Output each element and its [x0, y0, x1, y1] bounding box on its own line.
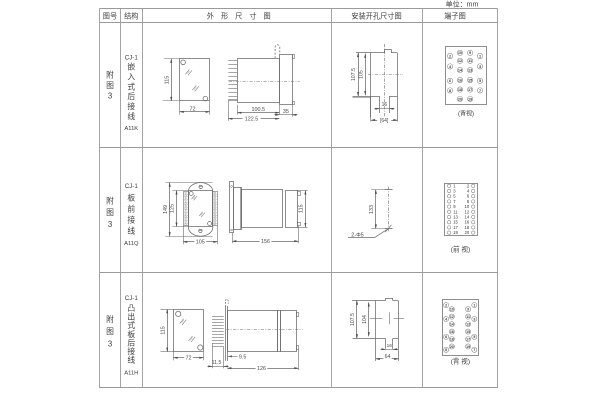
svg-text:3: 3 — [473, 317, 475, 321]
svg-text:外 形 尺 寸 图: 外 形 尺 寸 图 — [207, 11, 273, 20]
svg-text:线: 线 — [127, 226, 135, 236]
svg-text:105: 105 — [358, 70, 364, 79]
svg-text:5: 5 — [473, 335, 475, 339]
svg-text:13: 13 — [466, 322, 470, 326]
svg-text:式: 式 — [127, 320, 135, 330]
svg-text:后: 后 — [127, 337, 135, 347]
svg-text:3: 3 — [108, 340, 112, 349]
svg-text:15: 15 — [468, 78, 472, 82]
svg-text:15: 15 — [466, 330, 470, 334]
svg-text:单位：mm: 单位：mm — [446, 0, 479, 9]
svg-text:133: 133 — [369, 205, 375, 214]
svg-text:式: 式 — [127, 81, 135, 91]
svg-text:2-Φ5: 2-Φ5 — [351, 232, 364, 238]
svg-text:A11K: A11K — [124, 126, 138, 132]
svg-text:2: 2 — [449, 54, 451, 58]
svg-text:126: 126 — [257, 366, 266, 372]
svg-text:7: 7 — [473, 348, 475, 352]
svg-text:122.5: 122.5 — [245, 117, 259, 123]
svg-text:8: 8 — [445, 348, 447, 352]
svg-text:安装开孔尺寸图: 安装开孔尺寸图 — [351, 11, 401, 20]
svg-text:19: 19 — [453, 230, 458, 235]
svg-text:出: 出 — [127, 312, 135, 322]
svg-text:107.5: 107.5 — [350, 313, 356, 326]
svg-text:4: 4 — [445, 317, 447, 321]
svg-text:11.5: 11.5 — [212, 360, 222, 366]
svg-text:19: 19 — [466, 345, 470, 349]
svg-text:9: 9 — [467, 308, 469, 312]
svg-text:接: 接 — [127, 101, 135, 111]
svg-text:后: 后 — [127, 91, 135, 101]
svg-text:CJ-1: CJ-1 — [125, 183, 139, 190]
svg-text:3: 3 — [108, 220, 112, 229]
svg-text:3: 3 — [479, 65, 481, 69]
svg-text:17: 17 — [466, 337, 470, 341]
svg-text:107.5: 107.5 — [351, 68, 357, 81]
svg-text:100.5: 100.5 — [252, 107, 266, 113]
svg-text:(前 视): (前 视) — [451, 245, 470, 254]
svg-text:9.5: 9.5 — [239, 354, 247, 360]
svg-text:图: 图 — [106, 327, 114, 336]
svg-text:2: 2 — [445, 303, 447, 307]
svg-text:嵌: 嵌 — [127, 63, 135, 72]
svg-text:16: 16 — [387, 343, 393, 349]
svg-text:12: 12 — [450, 315, 454, 319]
svg-text:10: 10 — [458, 51, 462, 55]
svg-text:12: 12 — [458, 59, 462, 63]
svg-text:1: 1 — [473, 303, 475, 307]
svg-text:板: 板 — [127, 193, 135, 203]
svg-text:接: 接 — [127, 346, 135, 356]
svg-text:18: 18 — [450, 337, 454, 341]
svg-text:A11H: A11H — [124, 371, 138, 377]
svg-text:图: 图 — [106, 81, 114, 90]
svg-text:1: 1 — [479, 54, 481, 58]
svg-text:115: 115 — [164, 76, 170, 85]
svg-text:附: 附 — [106, 314, 114, 324]
svg-text:5: 5 — [479, 79, 481, 83]
svg-text:20: 20 — [465, 230, 470, 235]
svg-text:11: 11 — [466, 315, 470, 319]
svg-text:104: 104 — [362, 315, 368, 324]
svg-text:附: 附 — [106, 196, 114, 206]
svg-text:CJ-1: CJ-1 — [125, 295, 139, 302]
svg-text:13: 13 — [468, 69, 472, 73]
svg-text:19: 19 — [468, 97, 472, 101]
svg-text:72: 72 — [190, 106, 196, 112]
svg-text:115: 115 — [299, 204, 305, 213]
svg-text:14: 14 — [450, 322, 454, 326]
svg-text:16: 16 — [382, 102, 388, 108]
svg-text:接: 接 — [127, 215, 135, 225]
svg-text:附: 附 — [106, 70, 114, 80]
svg-text:115: 115 — [160, 326, 166, 335]
svg-text:8: 8 — [449, 89, 451, 93]
svg-text:35: 35 — [283, 109, 289, 115]
svg-text:156: 156 — [261, 239, 270, 245]
svg-text:11: 11 — [468, 59, 472, 63]
svg-text:图: 图 — [106, 208, 114, 217]
svg-text:前: 前 — [127, 204, 135, 214]
svg-text:结构: 结构 — [124, 11, 138, 20]
svg-text:3: 3 — [108, 92, 112, 101]
svg-text:(背 视): (背 视) — [451, 357, 470, 366]
svg-text:17: 17 — [468, 88, 472, 92]
svg-text:图号: 图号 — [103, 11, 117, 20]
svg-text:6: 6 — [445, 335, 447, 339]
svg-text:入: 入 — [127, 72, 135, 81]
svg-text:10: 10 — [450, 308, 454, 312]
svg-text:7: 7 — [479, 89, 481, 93]
svg-text:125: 125 — [170, 204, 176, 213]
svg-text:[64]: [64] — [380, 118, 389, 124]
svg-text:(背视): (背视) — [458, 110, 474, 118]
svg-text:20: 20 — [458, 97, 462, 101]
svg-text:64: 64 — [385, 354, 391, 360]
svg-text:16: 16 — [458, 78, 462, 82]
svg-text:16: 16 — [450, 330, 454, 334]
svg-text:线: 线 — [127, 355, 135, 365]
svg-text:72: 72 — [186, 355, 192, 361]
svg-text:20: 20 — [450, 345, 454, 349]
svg-text:105: 105 — [196, 240, 205, 246]
svg-text:板: 板 — [127, 329, 135, 339]
svg-text:A11Q: A11Q — [124, 241, 139, 247]
svg-text:18: 18 — [458, 88, 462, 92]
svg-text:线: 线 — [127, 111, 135, 121]
svg-text:6: 6 — [449, 79, 451, 83]
svg-text:149: 149 — [163, 205, 169, 214]
svg-text:CJ-1: CJ-1 — [125, 55, 139, 62]
svg-text:端子图: 端子图 — [444, 11, 466, 20]
svg-text:9: 9 — [469, 51, 471, 55]
